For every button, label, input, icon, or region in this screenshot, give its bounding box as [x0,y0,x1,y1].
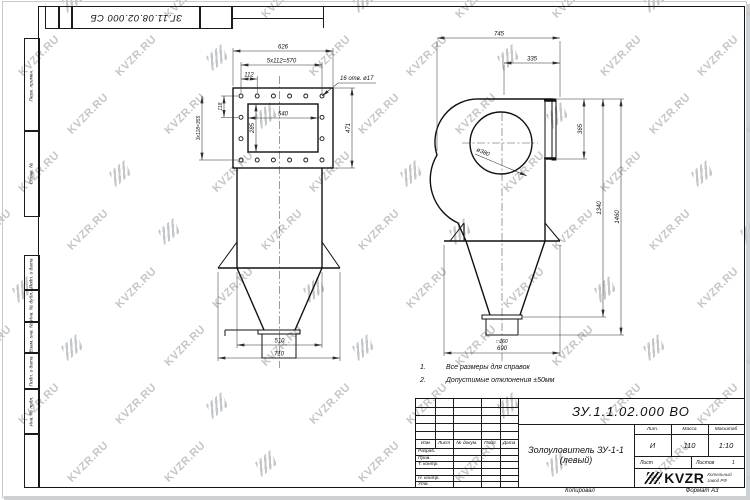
corner-cell-4 [231,6,324,28]
watermark-text: KVZR.RU [0,323,14,369]
side-view-drawing: 745 335 ø380 365 1340 1460 □160 690 [408,25,643,375]
dim-118: 118 [218,102,224,110]
lit-value: И [634,441,671,450]
kvzr-logo-icon [645,472,663,484]
dim-710: 710 [274,352,285,358]
drawing-sheet: KVZR.RUKVZR.RUKVZR.RUKVZR.RUKVZR.RUKVZR.… [0,0,750,500]
side-dimension-texts: 745 335 ø380 365 1340 1460 □160 690 [475,32,621,353]
side-dimension-lines [437,38,621,353]
copied-label: Копировал [540,488,620,494]
margin-box-empty [24,433,40,488]
front-outline [218,88,340,358]
dim-335: 335 [527,57,538,63]
note-2-number: 2. [420,377,426,384]
side-extension-lines [437,41,624,356]
dim-471: 471 [346,123,352,133]
holes-note: 16 отв. ø17 [340,76,374,82]
dim-355: 3x118=355 [196,116,202,141]
margin-box-inv-podl: Инв. № подл. [24,388,40,435]
note-1-number: 1. [420,364,426,371]
col-doc: № докум. [453,441,481,446]
margin-box-perv: Перв. примен. [24,38,40,132]
lit-label: Лит. [634,427,671,432]
corner-cell-3 [199,6,233,29]
dim-1340: 1340 [597,201,603,215]
sheets-value: 1 [732,460,735,466]
dim-outlet: □160 [496,339,508,345]
dim-510: 510 [274,339,285,345]
mass-label: Масса [671,427,708,432]
row-razrab: Разраб. [418,449,435,454]
watermark-text: KVZR.RU [744,0,750,21]
front-extension-lines [199,48,355,361]
col-data: Дата [500,441,518,446]
title-block: Изм Лист № докум. Подп. Дата Разраб. Про… [415,398,745,488]
front-view-drawing: 626 5x112=570 112 16 отв. ø17 540 285 47… [180,28,402,373]
col-list: Лист [435,441,453,446]
watermark-text: KVZR.RU [0,0,14,21]
watermark-text: KVZR.RU [744,439,750,485]
dim-365: 365 [578,123,584,134]
row-prov: Пров. [418,456,431,461]
note-2-text: Допустимые отклонения ±50мм [446,377,554,384]
row-utv: Утв. [418,482,429,487]
front-dimension-lines [202,51,376,358]
dim-570: 5x112=570 [267,59,297,65]
sheets-label: Листов [696,460,714,466]
dim-626: 626 [278,45,289,51]
margin-box-podp1: Подп. и дата [24,255,40,291]
kvzr-logo-subtitle: Котельный завод РФ [707,472,731,483]
document-number: ЗУ.1.1.02.000 ВО [518,399,744,424]
scale-value: 1:10 [708,441,744,450]
dim-540: 540 [278,112,289,118]
dim-112: 112 [244,73,254,79]
watermark-text: KVZR.RU [744,91,750,137]
corner-stamp: ЗГ.11.08.02.000 СБ [71,6,201,29]
scale-label: Масштаб [708,427,744,432]
format-label: Формат А3 [662,488,742,494]
col-izm: Изм [416,441,435,446]
margin-box-vzam: Взам. инв. № [24,321,40,354]
col-podp: Подп. [481,441,500,446]
sheet-label: Лист [640,460,653,466]
dim-285: 285 [250,122,256,134]
dim-690: 690 [497,346,508,352]
row-nkontr: Н. контр. [418,476,440,481]
dim-745: 745 [494,32,505,38]
product-name: Золоуловитель ЗУ-1-1 (левый) [518,424,634,486]
front-dimension-texts: 626 5x112=570 112 16 отв. ø17 540 285 47… [196,45,374,358]
side-centerlines [462,113,538,363]
margin-box-sprav: Справ. № [24,130,40,217]
side-outline [430,99,560,335]
margin-box-podp2: Подп. и дата [24,352,40,390]
dim-1460: 1460 [615,210,621,224]
company-logo: KVZR Котельный завод РФ [634,468,744,487]
kvzr-logo-text: KVZR [664,470,704,486]
mass-value: 110 [671,441,708,450]
note-1-text: Все размеры для справок [446,364,530,371]
watermark-text: KVZR.RU [0,207,14,253]
margin-box-inv-dubl: Инв. № дубл. [24,289,40,323]
watermark-text: KVZR.RU [744,323,750,369]
row-tkontr: Т. контр. [418,462,439,467]
dim-380: ø380 [475,147,491,158]
